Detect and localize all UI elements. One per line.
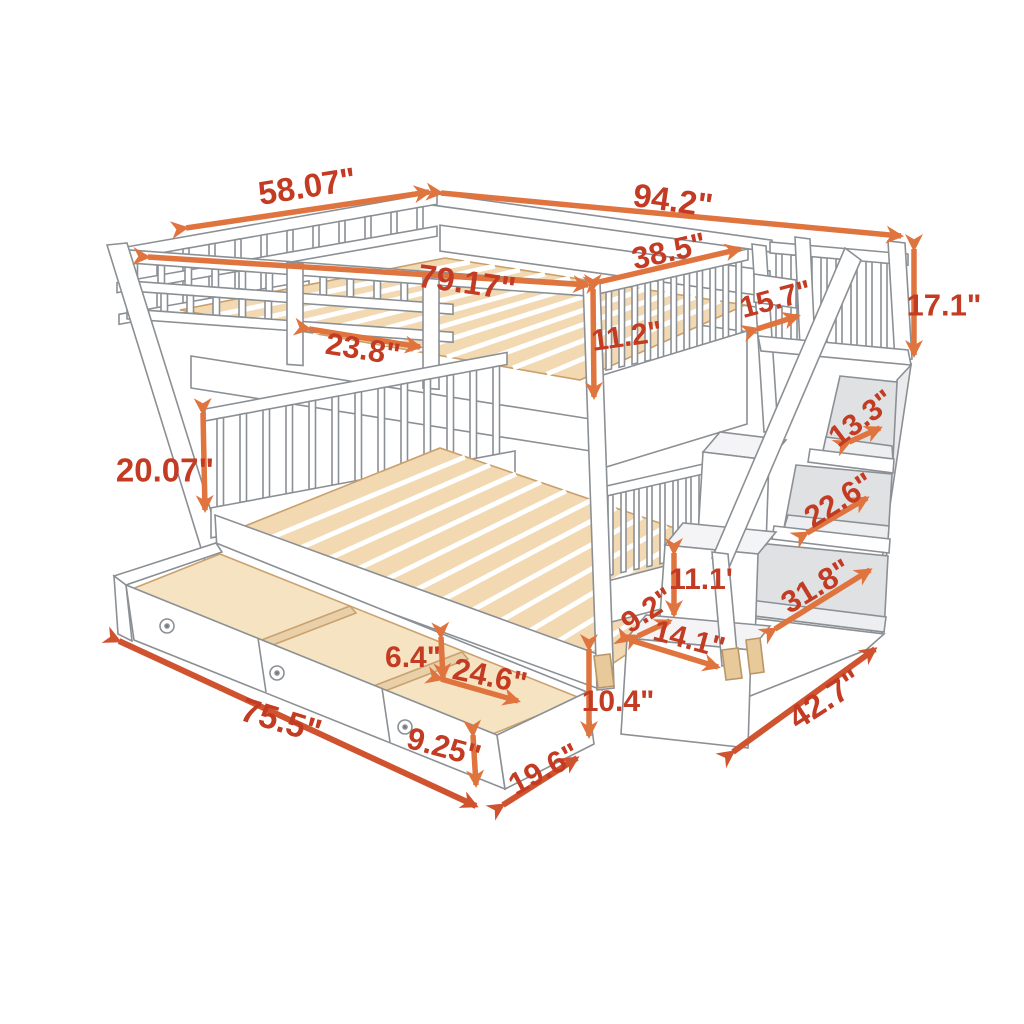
dim-label-top-rail-height: 17.1" xyxy=(906,290,981,321)
dim-label-step-rise: 11.1' xyxy=(669,565,733,595)
dim-label-drawer-inner-height: 6.4" xyxy=(385,643,441,673)
bunk-bed-diagram xyxy=(0,0,1024,1024)
dim-label-under-bed-clearance: 10.4" xyxy=(582,687,655,717)
dim-label-lower-guard-height: 20.07" xyxy=(116,454,214,487)
diagram-canvas: 58.07" 94.2" 79.17" 38.5" 23.8" 11.2" 15… xyxy=(0,0,1024,1024)
